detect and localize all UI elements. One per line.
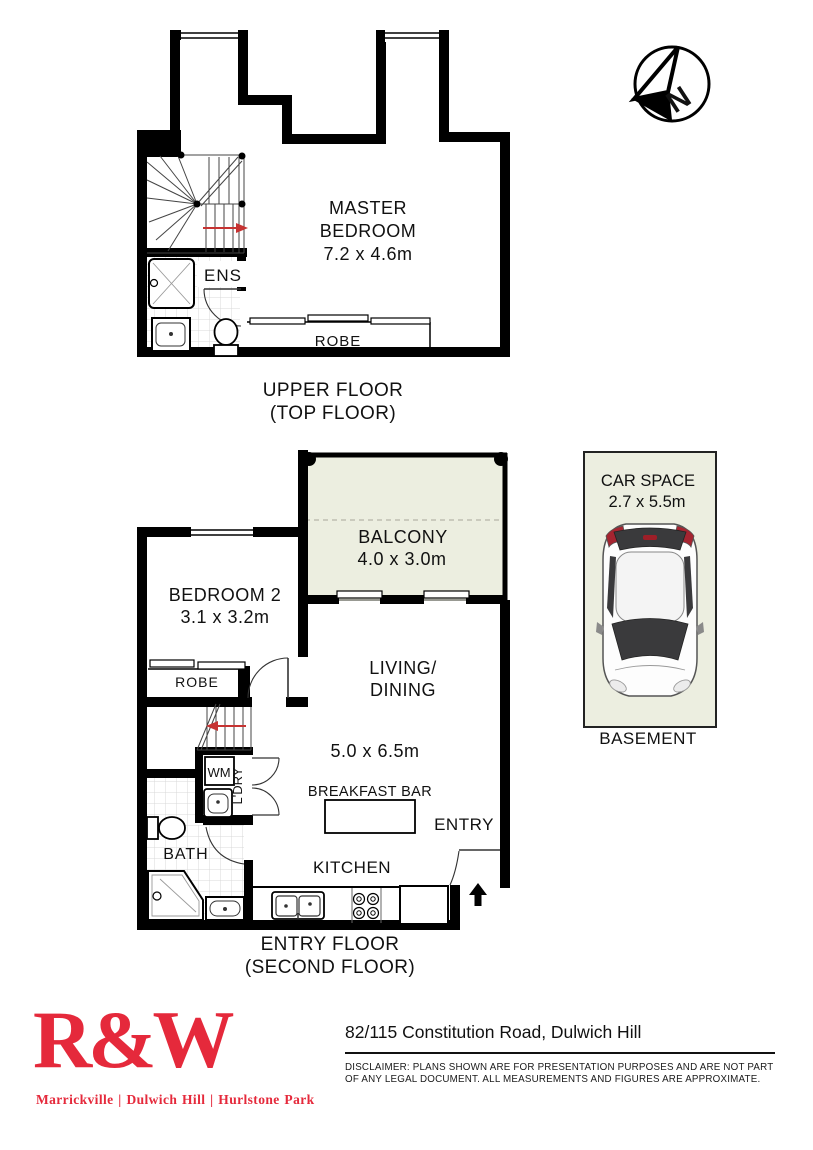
bath-label: BATH [163, 846, 208, 863]
balcony: BALCONY 4.0 x 3.0m [302, 452, 508, 604]
toilet-icon [147, 817, 185, 839]
shower-icon [149, 259, 194, 308]
disclaimer-text: DISCLAIMER: PLANS SHOWN ARE FOR PRESENTA… [345, 1062, 773, 1086]
compass-north-icon: N [634, 47, 709, 121]
disclaimer-line-2: OF ANY LEGAL DOCUMENT. ALL MEASUREMENTS … [345, 1074, 773, 1086]
kitchen-label: KITCHEN [313, 858, 391, 877]
wall-corner-block [137, 130, 181, 157]
entry-floor-caption-1: ENTRY FLOOR [261, 934, 400, 955]
hall-wall [137, 697, 252, 707]
entry-door [450, 850, 500, 885]
balcony-label: BALCONY [358, 527, 448, 547]
vanity-icon [152, 318, 190, 351]
entry-floor-plan: BALCONY 4.0 x 3.0m BEDROOM 2 3.1 x 3.2m [137, 450, 508, 978]
agency-offices: Marrickville | Dulwich Hill | Hurlstone … [36, 1092, 315, 1108]
window-upper-left [181, 28, 238, 42]
basement-caption: BASEMENT [599, 729, 697, 748]
car-space: CAR SPACE 2.7 x 5.5m BASEMENT [584, 452, 716, 748]
ens-label: ENS [204, 266, 242, 285]
kitchen-sink-icon [272, 892, 324, 919]
entry-floor-caption-2: (SECOND FLOOR) [245, 957, 415, 978]
balcony-slider-panel [424, 591, 469, 598]
balcony-slider-panel [337, 591, 382, 598]
footer: R&W Marrickville | Dulwich Hill | Hurlst… [0, 1000, 813, 1150]
floorplan-drawing: N [0, 0, 813, 1000]
bedroom2-door-stub-wall [286, 697, 308, 707]
laundry-bifold-doors [252, 758, 279, 815]
car-top-view-icon [596, 524, 704, 696]
breakfast-bar-label: BREAKFAST BAR [308, 784, 432, 800]
living-label-1: LIVING/ [369, 658, 437, 678]
master-bedroom-label-2: BEDROOM [320, 221, 417, 241]
master-bedroom-label-1: MASTER [329, 198, 407, 218]
car-space-label: CAR SPACE [601, 472, 695, 490]
upper-floor-caption-2: (TOP FLOOR) [270, 403, 396, 424]
bath-top-wall [137, 769, 197, 778]
living-label-2: DINING [370, 680, 436, 700]
cooktop-icon [354, 894, 379, 919]
bedroom2-door [248, 658, 288, 698]
laundry-tub-icon [204, 789, 232, 817]
bedroom2-label: BEDROOM 2 [169, 585, 282, 605]
bedroom2-window [191, 526, 253, 538]
floorplan-page: N [0, 0, 813, 1150]
wm-label: WM [207, 765, 230, 780]
laundry-top-wall [195, 747, 253, 755]
bedroom2-robe-label: ROBE [175, 674, 219, 690]
vanity-icon [206, 897, 244, 920]
laundry-label: L'DRY [230, 767, 245, 804]
entry-door-post [450, 885, 460, 930]
upper-robe-label: ROBE [315, 333, 362, 350]
entry-label: ENTRY [434, 815, 494, 834]
window-upper-right [385, 28, 439, 42]
car-space-size: 2.7 x 5.5m [608, 493, 685, 511]
upper-floor-plan: ENS ROBE MASTER BEDROOM 7.2 x 4.6m UPPER [137, 28, 505, 424]
property-address: 82/115 Constitution Road, Dulwich Hill [345, 1022, 641, 1043]
address-divider [345, 1052, 775, 1054]
toilet-icon [214, 319, 238, 356]
bedroom2-robe: ROBE [148, 660, 245, 690]
entry-direction-arrow-icon [469, 883, 487, 906]
balcony-size: 4.0 x 3.0m [357, 549, 446, 569]
laundry-left-wall [195, 750, 203, 823]
bath-right-wall [244, 860, 253, 930]
living-size: 5.0 x 6.5m [330, 741, 419, 761]
bedroom2-size: 3.1 x 3.2m [180, 607, 269, 627]
upper-floor-caption-1: UPPER FLOOR [263, 380, 404, 401]
breakfast-bar [325, 800, 415, 833]
agency-logo: R&W [33, 996, 231, 1084]
balcony-post [494, 452, 508, 466]
master-bedroom-size: 7.2 x 4.6m [323, 244, 412, 264]
disclaimer-line-1: DISCLAIMER: PLANS SHOWN ARE FOR PRESENTA… [345, 1062, 773, 1074]
